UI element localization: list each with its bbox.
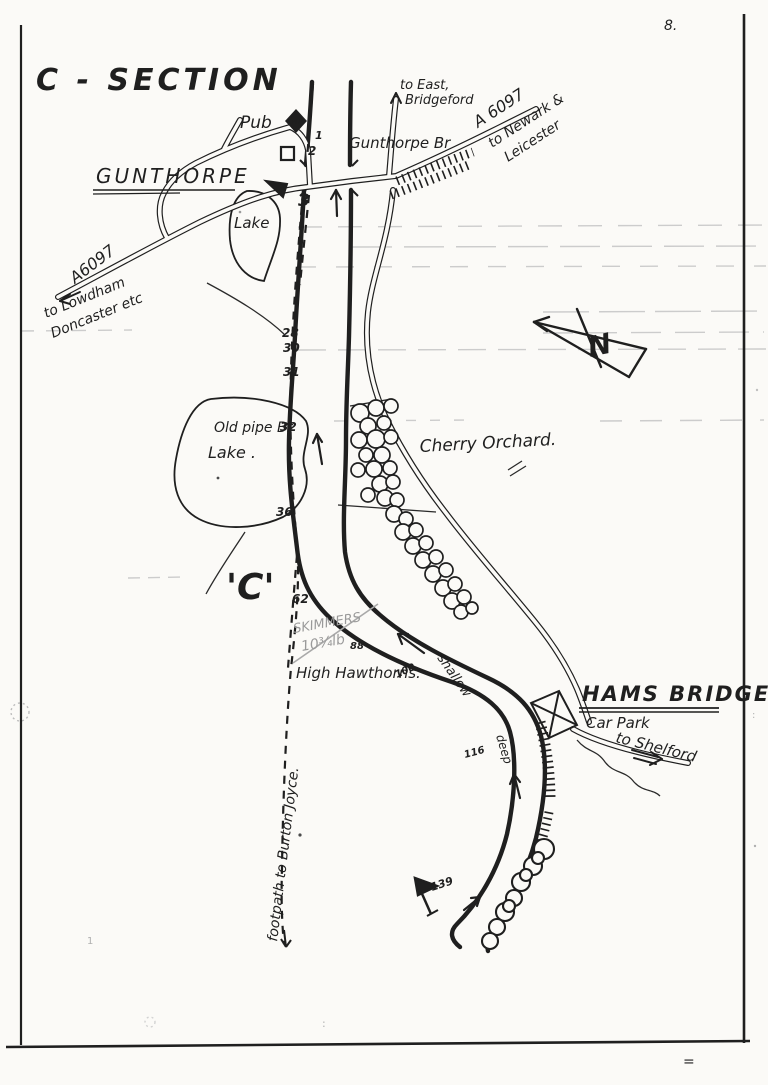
stray-mark: : [322,1017,326,1030]
footpath-label: footpath to Burton Joyce. [265,766,302,942]
stray-mark: = [683,1054,695,1070]
embankment-hatching [391,152,550,880]
to-east-bridgeford-label: to East, [400,78,449,93]
page-number: 8. [664,18,677,34]
river [289,82,545,951]
peg-3: 3 [298,191,310,211]
scan-marks: 1 : : = [87,211,758,1070]
upper-lake-label: Lake [234,214,269,232]
peg-32: 32 [280,420,297,434]
pub-label: Pub [240,113,272,133]
building-outline [281,147,294,160]
peg-36: 36 [276,505,293,519]
orchard-trees [351,399,478,619]
skimmers-weight: 10¾lb [300,631,346,654]
stray-mark: : [752,710,755,721]
river-east-bank [350,82,351,165]
map-title: C - SECTION [36,63,282,98]
section-c-marker: 'C' [226,567,274,608]
lower-lake-label: Lake . [208,443,256,462]
scanned-map-page: PH [0,0,768,1085]
peg-31: 31 [283,365,300,379]
peg-1: 1 [315,129,323,142]
stray-mark: 1 [87,936,93,947]
peg-2: 2 [308,144,316,158]
gunthorpe-bridge-label: Gunthorpe Br [349,134,451,152]
hand-drawn-river-map: PH [0,0,768,1085]
peg-30: 30 [283,341,300,355]
village-name: GUNTHORPE [96,164,250,188]
to-east-bridgeford-label: Bridgeford [405,93,474,108]
peg-28: 28 [282,326,299,340]
peg-139: 139 [429,874,455,894]
labels: 8. C - SECTION Pub GUNTHORPE Gunthorpe B… [36,18,768,942]
bank-bushes [482,839,554,949]
river-west-bank [289,190,514,947]
to-shelford-label: to Shelford [614,728,699,766]
hams-bridge-label: HAMS BRIDGE [582,682,768,706]
svg-text:PH: PH [292,119,301,126]
peg-88: 88 [350,641,364,652]
peg-62: 62 [292,592,309,606]
peg-116: 116 [463,745,486,761]
photocopy-streaks [11,225,766,1027]
cherry-orchard-label: Cherry Orchard. [419,430,557,457]
